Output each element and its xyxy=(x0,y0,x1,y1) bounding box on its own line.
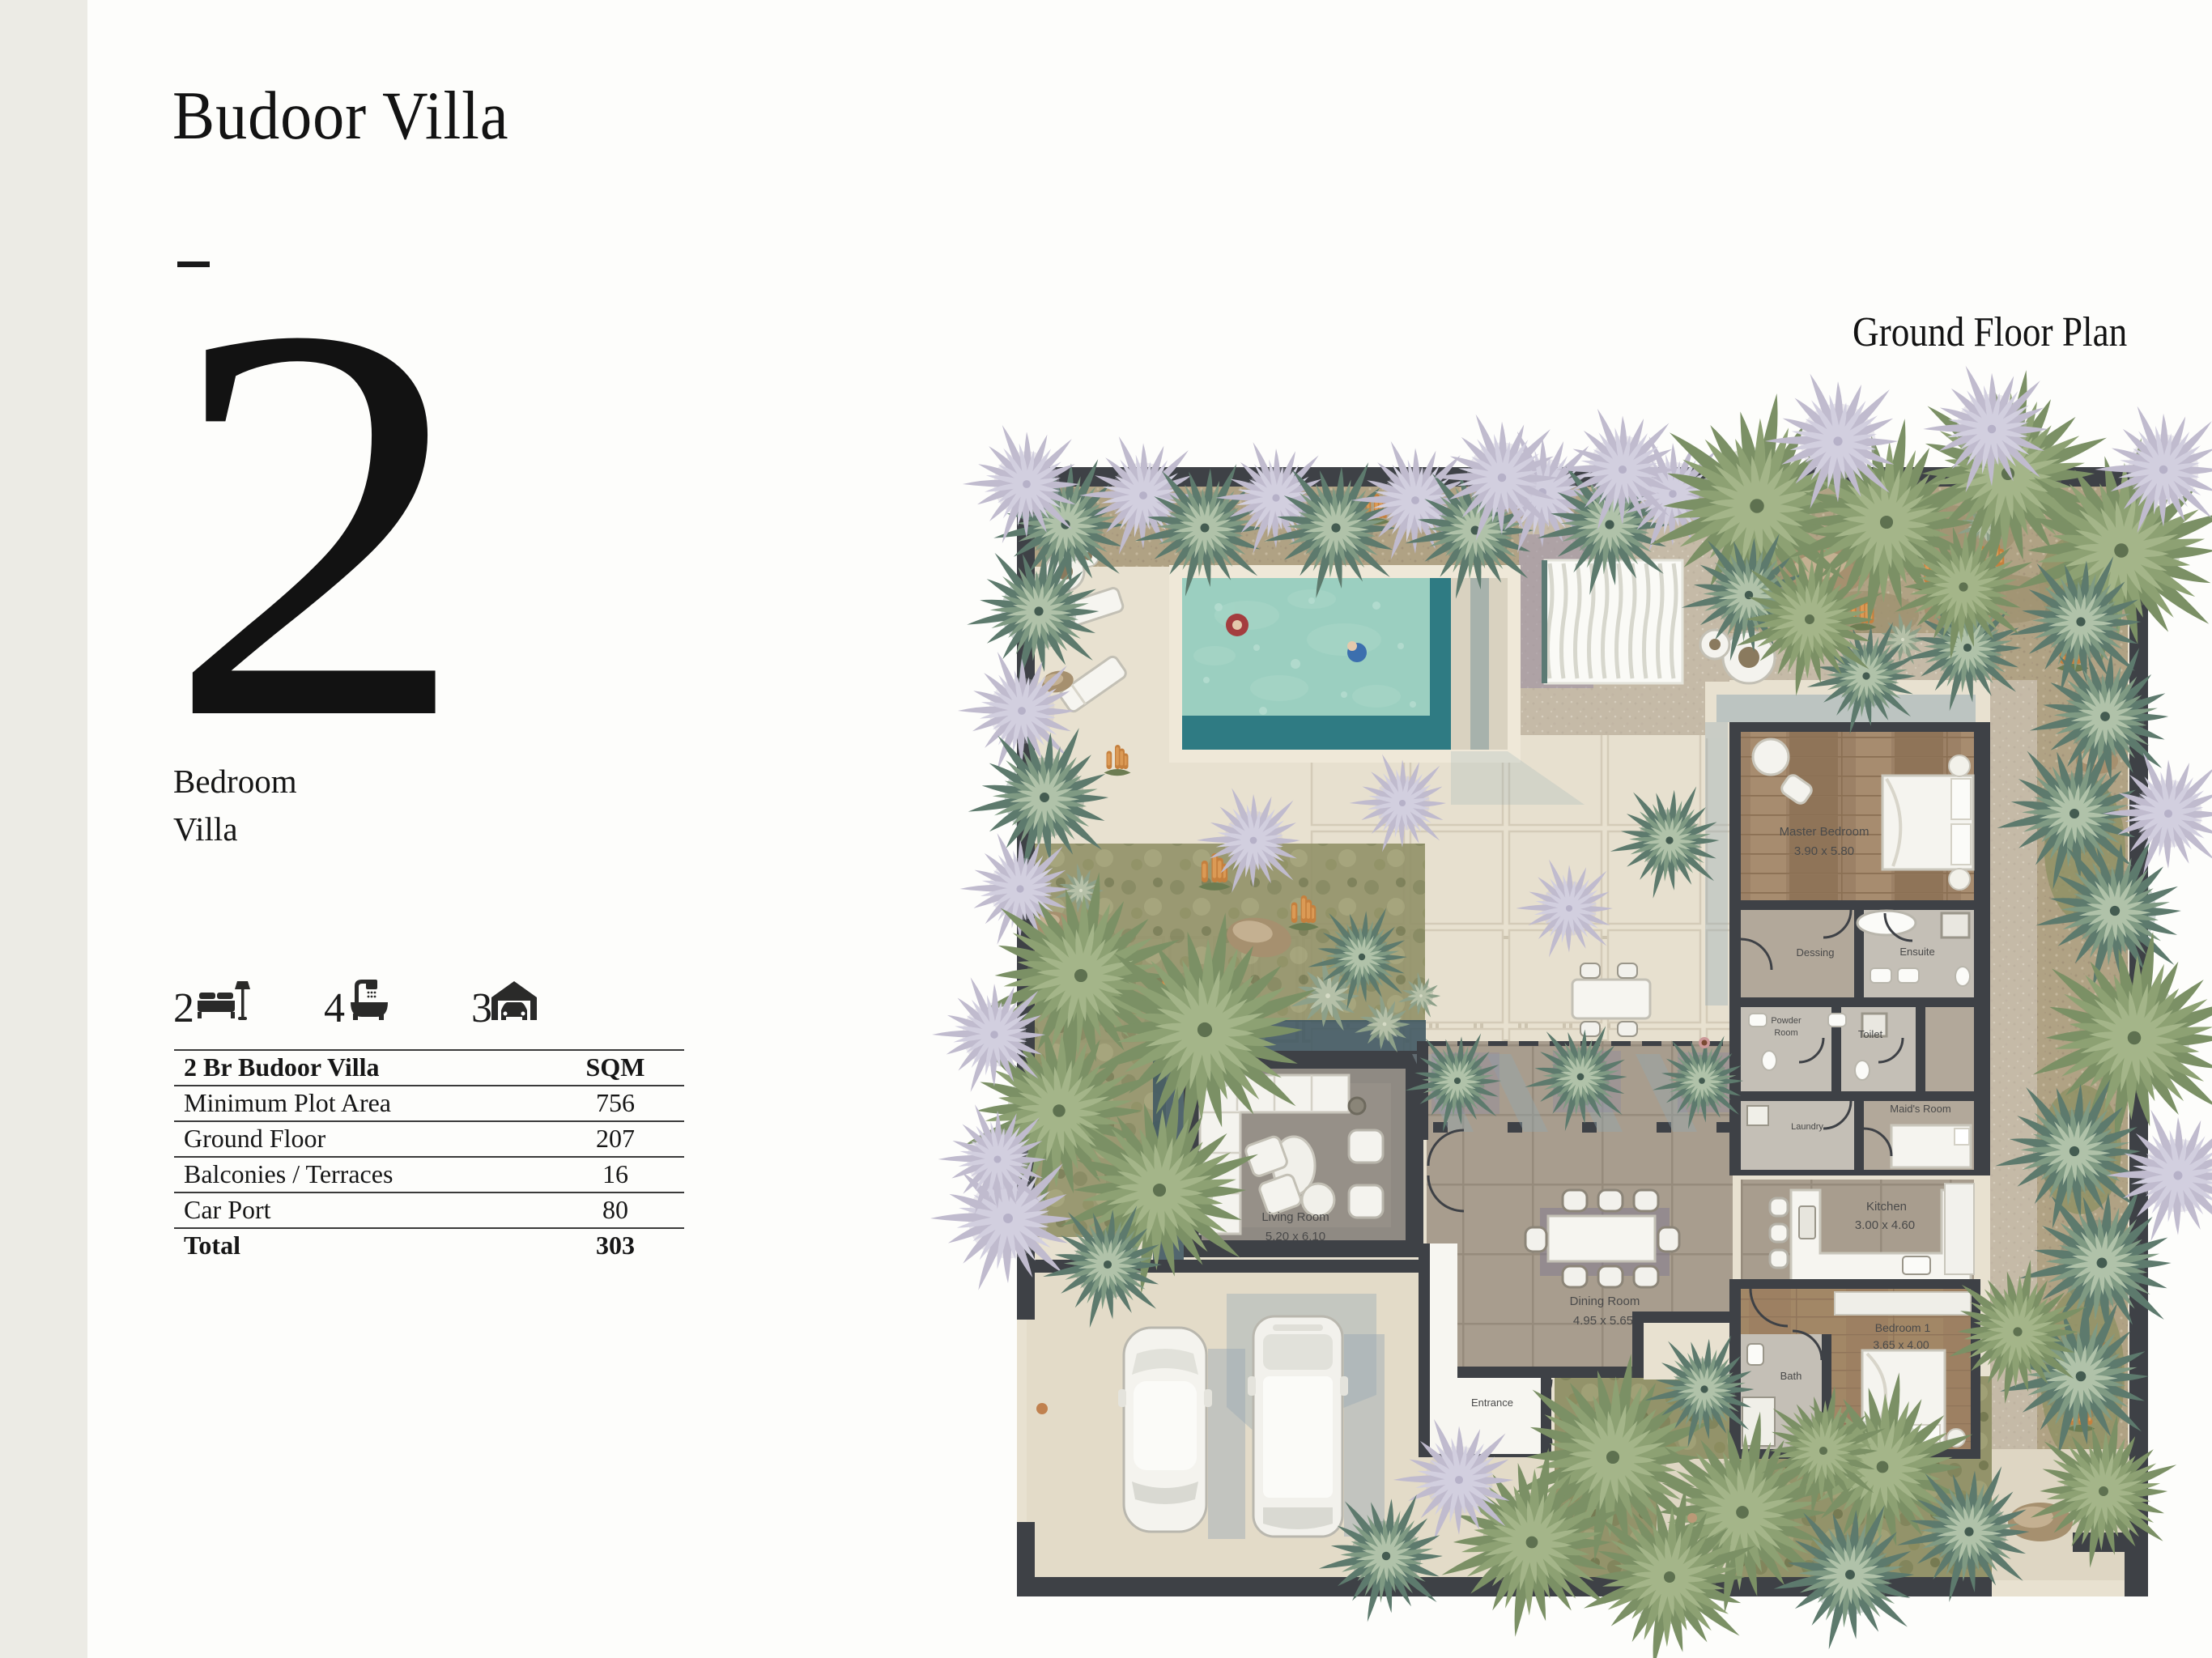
svg-text:Ensuite: Ensuite xyxy=(1899,946,1934,958)
svg-text:Maid's Room: Maid's Room xyxy=(1890,1103,1950,1115)
svg-text:Toilet: Toilet xyxy=(1858,1028,1883,1040)
svg-text:Master Bedroom: Master Bedroom xyxy=(1780,825,1870,839)
svg-text:3.65 x 4.00: 3.65 x 4.00 xyxy=(1873,1338,1929,1351)
svg-text:Dining Room: Dining Room xyxy=(1570,1295,1640,1308)
svg-text:Powder: Powder xyxy=(1771,1016,1802,1026)
svg-text:Kitchen: Kitchen xyxy=(1866,1200,1907,1214)
svg-text:Entrance: Entrance xyxy=(1471,1397,1513,1409)
svg-text:3.00 x 4.60: 3.00 x 4.60 xyxy=(1855,1218,1915,1232)
svg-text:Bedroom 1: Bedroom 1 xyxy=(1875,1321,1931,1334)
svg-text:4.95 x 5.65: 4.95 x 5.65 xyxy=(1573,1314,1633,1328)
svg-text:3.90 x 5.80: 3.90 x 5.80 xyxy=(1794,844,1854,858)
svg-text:Dessing: Dessing xyxy=(1797,946,1835,959)
svg-text:5.20 x 6.10: 5.20 x 6.10 xyxy=(1266,1230,1325,1243)
svg-text:Bath: Bath xyxy=(1780,1370,1802,1382)
svg-text:Laundry: Laundry xyxy=(1791,1122,1823,1132)
svg-text:Room: Room xyxy=(1774,1028,1797,1038)
svg-text:Living Room: Living Room xyxy=(1261,1210,1329,1224)
